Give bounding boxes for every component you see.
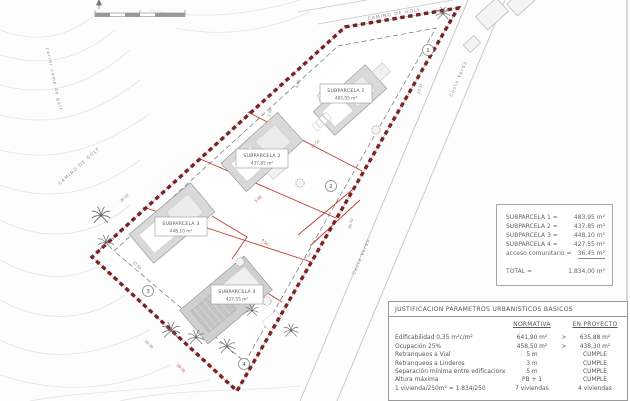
param-normativa: 641,90 m² (505, 334, 559, 342)
parcel-area: 437,85 m² (251, 161, 274, 167)
param-normativa: 5 m (505, 368, 559, 376)
scale-bar (95, 10, 185, 17)
parcel-label-1: SUBPARCELA 1 483,95 m² (320, 84, 372, 103)
street-label: carrer camp de golf (44, 47, 63, 111)
parcel-marker-1: 1 (423, 45, 434, 56)
param-comparator (559, 351, 569, 359)
param-normativa: 3 m (505, 360, 559, 368)
param-comparator (559, 385, 569, 393)
legend-total-row: TOTAL = 1.834,00 m² (506, 267, 605, 276)
svg-text:16.30: 16.30 (144, 339, 155, 350)
parameters-table-title: JUSTIFICACION PARAMETROS URBANISTICOS BA… (389, 302, 627, 317)
column-header-proyecto: EN PROYECTO (569, 321, 621, 329)
param-proyecto: CUMPLE (569, 376, 621, 384)
legend-value: 36,45 m² (578, 249, 605, 259)
legend-row: SUBPARCELA 2 = 437,85 m² (506, 222, 605, 231)
param-normativa: PB + 1 (505, 376, 559, 384)
parcel-name: SUBPARCELA 2 (243, 153, 280, 159)
param-label: Separación mínima entre edificaciones (395, 368, 505, 376)
svg-text:3: 3 (146, 289, 150, 295)
parcel-marker-3: 3 (143, 286, 154, 297)
param-proyecto: CUMPLE (569, 360, 621, 368)
parameters-table: JUSTIFICACION PARAMETROS URBANISTICOS BA… (388, 301, 628, 401)
param-normativa: 458,50 m² (505, 343, 559, 351)
legend-value: 427,55 m² (574, 240, 605, 249)
parcel-area: 483,95 m² (335, 96, 358, 102)
param-comparator: > (559, 343, 569, 351)
site-plan-sheet: SUBPARCELA 1 483,95 m² SUBPARCELA 2 437,… (0, 0, 630, 401)
param-label: Altura máxima (395, 376, 505, 384)
svg-text:1: 1 (426, 48, 430, 54)
param-label: Retranqueos a Linderos (395, 360, 505, 368)
param-comparator (559, 376, 569, 384)
legend-label: SUBPARCELA 4 = (506, 240, 558, 249)
neighbour-buildings (463, 0, 535, 52)
param-proyecto: 438,30 m² (569, 343, 621, 351)
param-label: Retranqueos a Vial (395, 351, 505, 359)
parcel-name: SUBPARCELA 1 (327, 88, 364, 94)
parameters-table-grid: NORMATIVA EN PROYECTO Edificabilidad 0,3… (389, 317, 627, 393)
shrub-icon (296, 179, 304, 187)
param-label: 1 vivienda/250m² = 1.834/250 (395, 385, 505, 393)
svg-text:36.70: 36.70 (348, 217, 355, 229)
parcel-marker-2: 2 (326, 181, 337, 192)
legend-row: SUBPARCELA 3 = 448,10 m² (506, 231, 605, 240)
legend-label: SUBPARCELA 1 = (506, 213, 558, 222)
shrub-icon (236, 258, 244, 266)
svg-text:18.35: 18.35 (176, 363, 187, 374)
legend-value: 437,85 m² (574, 222, 605, 231)
palm-tree-icon (284, 324, 298, 337)
street-label: CAMINO DE GOLF (57, 146, 101, 187)
legend-value: 483,95 m² (574, 213, 605, 222)
svg-text:4: 4 (242, 362, 246, 368)
param-label: Edificabilidad 0,35 m²c/m² (395, 334, 505, 342)
legend-total-value: 1.834,00 m² (568, 267, 605, 276)
parcel-label-4: SUBPARCELA 4 427,55 m² (211, 285, 263, 304)
legend-row: SUBPARCELA 1 = 483,95 m² (506, 213, 605, 222)
param-comparator (559, 360, 569, 368)
legend-row: SUBPARCELA 4 = 427,55 m² (506, 240, 605, 249)
parcel-area: 427,55 m² (226, 297, 249, 303)
param-normativa: 7 viviendas (505, 385, 559, 393)
parcel-label-3: SUBPARCELA 3 448,10 m² (155, 217, 207, 236)
param-normativa: 5 m (505, 351, 559, 359)
svg-text:2: 2 (329, 184, 333, 190)
street-label: Costa Verda (448, 60, 469, 98)
parcel-marker-4: 4 (239, 359, 250, 370)
param-proyecto: 4 viviendas (569, 385, 621, 393)
legend-total-label: TOTAL = (506, 267, 532, 276)
shrub-icon (372, 126, 380, 134)
param-comparator: > (559, 334, 569, 342)
parcel-name: SUBPARCELA 3 (162, 221, 199, 227)
param-proyecto: CUMPLE (569, 351, 621, 359)
column-header-normativa: NORMATIVA (505, 321, 559, 329)
svg-text:26.10: 26.10 (119, 193, 130, 203)
svg-text:27.35: 27.35 (417, 82, 424, 94)
legend-label: acceso comunitario = (506, 249, 572, 259)
parcel-name: SUBPARCELA 4 (218, 289, 255, 295)
legend-value: 448,10 m² (574, 231, 605, 240)
param-proyecto: CUMPLE (569, 368, 621, 376)
param-proyecto: 635,88 m² (569, 334, 621, 342)
area-summary-box: SUBPARCELA 1 = 483,95 m² SUBPARCELA 2 = … (496, 204, 613, 286)
north-arrow-icon (97, 0, 102, 9)
street-label: Costa Verda (351, 238, 372, 276)
param-label: Ocupación 25% (395, 343, 505, 351)
legend-row: acceso comunitario = 36,45 m² (506, 249, 605, 259)
param-comparator (559, 368, 569, 376)
legend-label: SUBPARCELA 2 = (506, 222, 558, 231)
parcel-area: 448,10 m² (170, 229, 193, 235)
legend-label: SUBPARCELA 3 = (506, 231, 558, 240)
parcel-label-2: SUBPARCELA 2 437,85 m² (236, 149, 288, 168)
shrub-icon (263, 297, 271, 305)
